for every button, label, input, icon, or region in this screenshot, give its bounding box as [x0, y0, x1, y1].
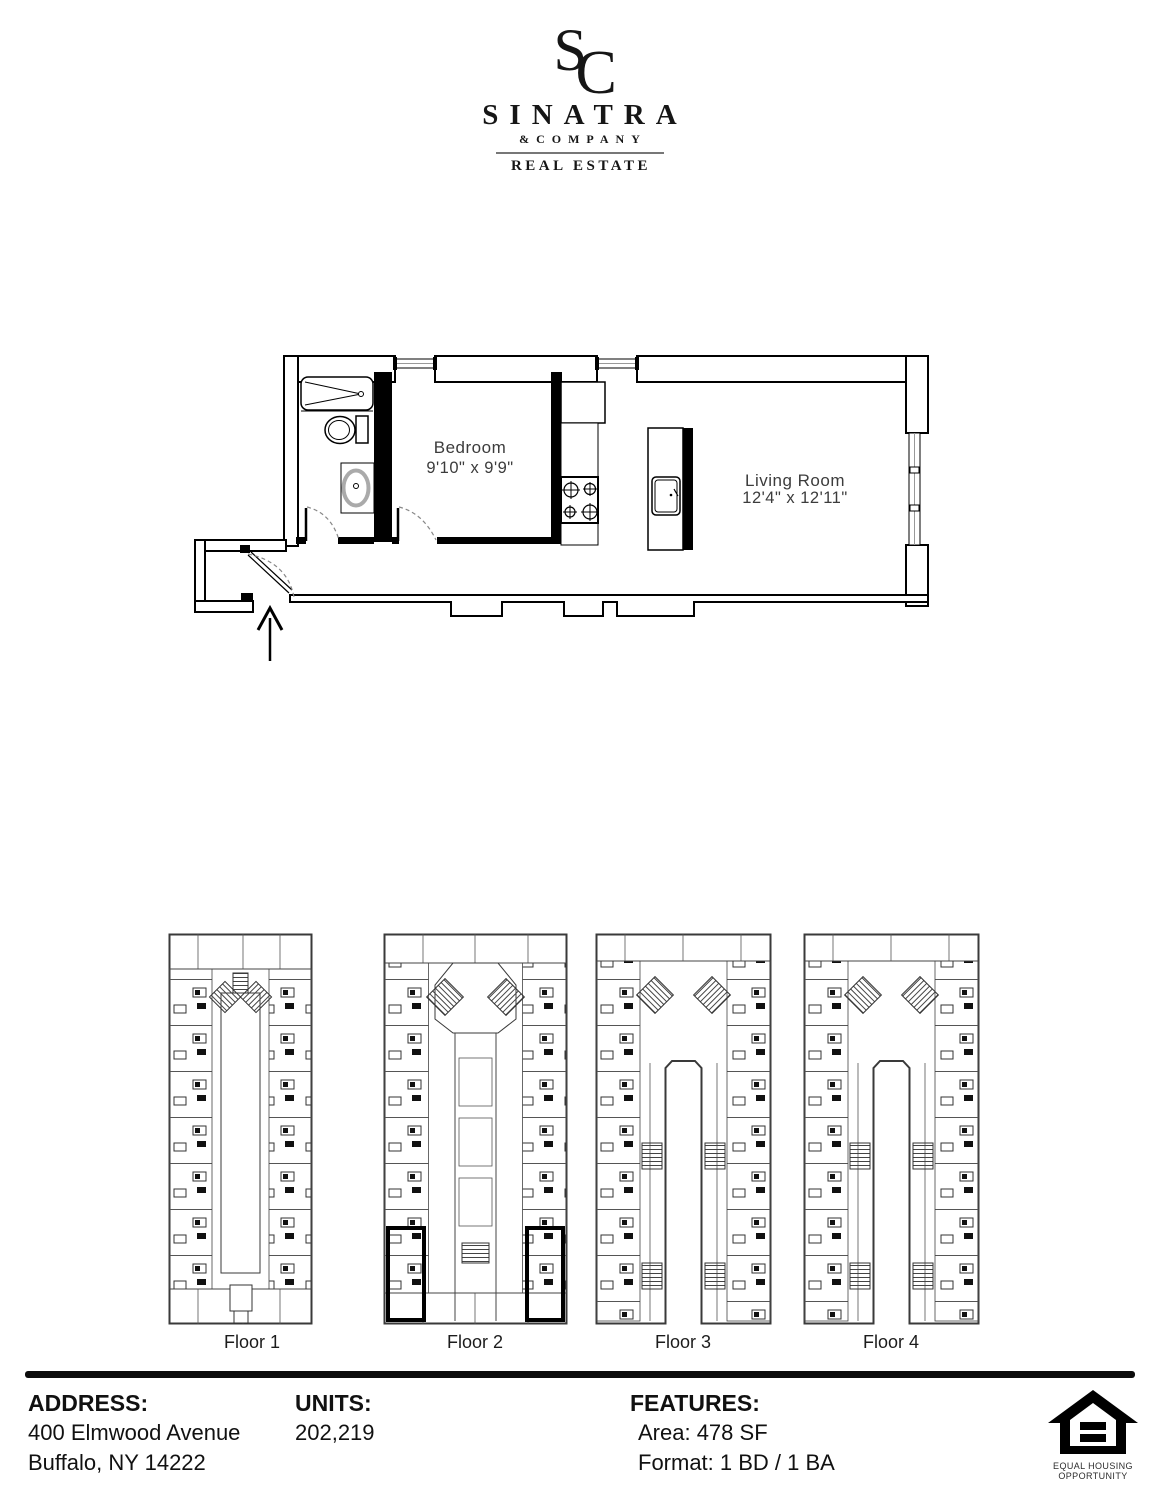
- features-heading: FEATURES:: [630, 1390, 760, 1417]
- floor-3-miniplan: [595, 933, 772, 1325]
- units-heading: UNITS:: [295, 1390, 372, 1417]
- floor-1-miniplan: [168, 933, 313, 1325]
- floorplan-sheet: S C SINATRA &COMPANY REAL ESTATE: [0, 0, 1159, 1500]
- shower: [301, 377, 373, 411]
- address-heading: ADDRESS:: [28, 1390, 148, 1417]
- kitchen-island-sink: [648, 428, 683, 550]
- floor-1-label: Floor 1: [192, 1332, 312, 1353]
- features-format: Format: 1 BD / 1 BA: [638, 1450, 835, 1476]
- brand-tagline: REAL ESTATE: [3, 158, 1159, 175]
- floor-2-miniplan: [383, 933, 568, 1325]
- equal-housing-logo: EQUAL HOUSING OPPORTUNITY: [1048, 1390, 1138, 1482]
- window-top-1: [393, 357, 437, 370]
- eho-text-line-2: OPPORTUNITY: [1048, 1471, 1138, 1481]
- floor-3-label: Floor 3: [623, 1332, 743, 1353]
- living-room-label: Living Room: [745, 471, 845, 490]
- toilet: [325, 416, 368, 444]
- brand-logo: S C SINATRA &COMPANY REAL ESTATE: [0, 26, 1159, 175]
- footer-divider: [25, 1371, 1135, 1378]
- floor-2-label: Floor 2: [415, 1332, 535, 1353]
- sink-vanity: [341, 463, 374, 513]
- bedroom-door: [398, 507, 436, 541]
- equal-housing-house-icon: [1048, 1390, 1138, 1456]
- address-line-1: 400 Elmwood Avenue: [28, 1420, 240, 1446]
- features-area: Area: 478 SF: [638, 1420, 768, 1446]
- bathroom-door: [306, 507, 339, 541]
- eho-text-line-1: EQUAL HOUSING: [1048, 1461, 1138, 1471]
- entry-door: [248, 552, 294, 597]
- brand-rule: [496, 152, 664, 154]
- bedroom-dimensions: 9'10" x 9'9": [426, 459, 513, 477]
- brand-monogram: S C: [520, 26, 640, 100]
- window-right: [909, 433, 920, 545]
- refrigerator: [561, 382, 605, 423]
- floor-4-miniplan: [803, 933, 980, 1325]
- brand-subname: &COMPANY: [7, 132, 1159, 147]
- address-line-2: Buffalo, NY 14222: [28, 1450, 206, 1476]
- unit-floor-plan: Bedroom 9'10" x 9'9" Living Room 12'4" x…: [160, 335, 960, 675]
- entry-arrow: [258, 608, 282, 661]
- stove: [561, 477, 599, 523]
- window-top-2: [595, 357, 639, 370]
- bedroom-label: Bedroom: [434, 438, 506, 457]
- units-value: 202,219: [295, 1420, 375, 1446]
- monogram-c: C: [576, 42, 617, 104]
- floor-4-label: Floor 4: [831, 1332, 951, 1353]
- living-room-dimensions: 12'4" x 12'11": [742, 489, 847, 507]
